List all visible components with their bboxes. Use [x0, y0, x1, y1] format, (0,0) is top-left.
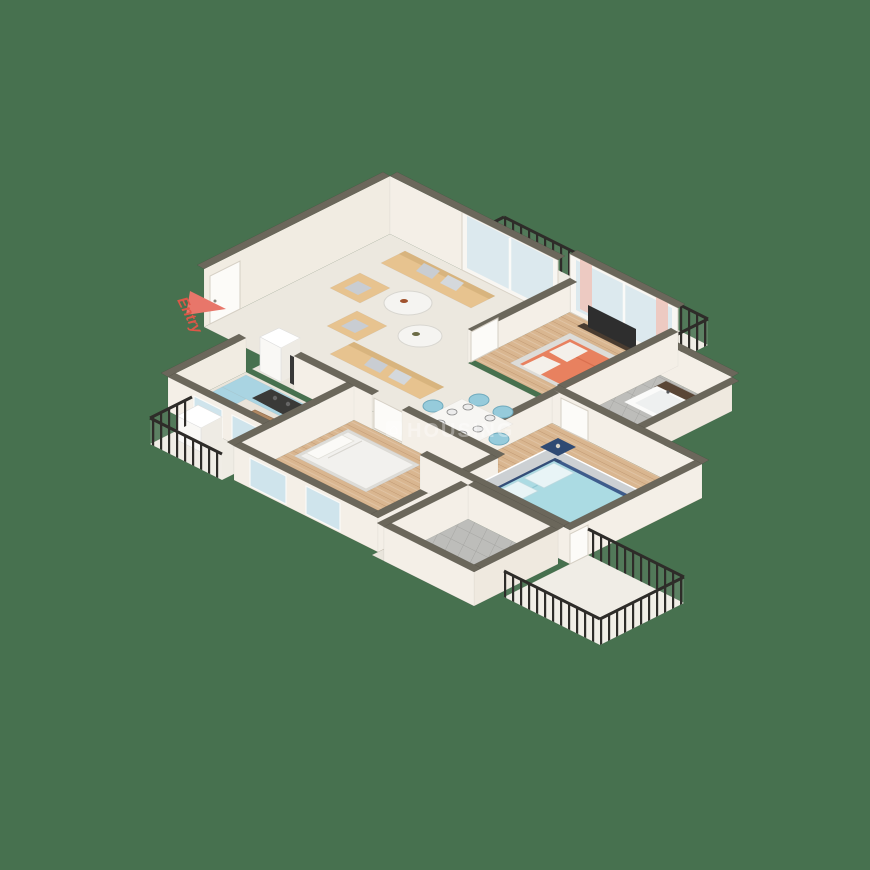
watermark-logo-glyph: ⌂	[389, 420, 399, 438]
watermark-text: HOUSING	[407, 420, 514, 442]
entry-door-handle	[214, 300, 217, 303]
plate	[463, 404, 473, 410]
coffee-table-round	[384, 291, 432, 315]
cooktop-burner	[286, 402, 290, 406]
cooktop-burner	[273, 396, 277, 400]
bathtub-faucet	[666, 390, 669, 393]
coffee-table-round	[398, 325, 442, 347]
nightstand-lamp	[556, 444, 560, 448]
floor-plan-scene: Entry	[0, 0, 870, 870]
plate	[447, 409, 457, 415]
coffee-table-decor	[412, 332, 420, 336]
coffee-table-decor	[400, 299, 408, 303]
